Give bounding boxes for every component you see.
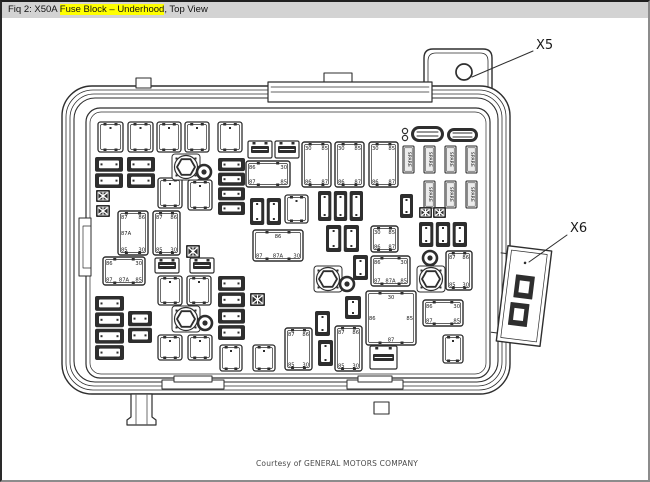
svg-text:SPARE: SPARE xyxy=(406,152,412,167)
relay-29: 30858687 xyxy=(371,226,398,252)
fuse-cavity-9 xyxy=(187,276,211,305)
fuse-cavity-4 xyxy=(218,122,242,152)
housing-mounting-legs xyxy=(127,394,389,425)
svg-text:85: 85 xyxy=(321,146,328,152)
relay-25: 87868530 xyxy=(335,326,362,371)
slot-60 xyxy=(155,258,179,273)
relay-24: 87868530 xyxy=(285,328,312,370)
spare-33: SPARE xyxy=(466,146,477,173)
svg-text:SPARE: SPARE xyxy=(469,152,475,167)
svg-text:85: 85 xyxy=(121,248,128,254)
relay-18: 86308785 xyxy=(246,161,290,187)
svg-text:87: 87 xyxy=(388,245,395,251)
svg-text:85: 85 xyxy=(156,248,163,254)
svg-text:30: 30 xyxy=(293,254,300,260)
spare-34: SPARE xyxy=(424,181,435,208)
relay-17: 30858687 xyxy=(369,142,398,187)
mrow-49 xyxy=(345,296,361,319)
fuse-cavity-1 xyxy=(128,122,153,152)
hex-64 xyxy=(172,306,200,332)
relay-20: 87868530 xyxy=(153,211,180,255)
relay-16: 30858687 xyxy=(335,142,364,187)
left-bracket xyxy=(79,218,91,276)
svg-text:86: 86 xyxy=(138,215,145,221)
target-67 xyxy=(197,165,211,179)
relay-22: 868787A30 xyxy=(253,230,303,261)
fuse-cavity-10 xyxy=(158,335,182,360)
relay-26: 30868587 xyxy=(366,291,416,345)
relay-23: 86308787A85 xyxy=(371,256,410,286)
svg-text:86: 86 xyxy=(170,215,177,221)
svg-text:30: 30 xyxy=(135,261,142,267)
svg-text:86: 86 xyxy=(305,180,312,186)
svg-text:87: 87 xyxy=(256,254,263,260)
svg-text:30: 30 xyxy=(302,363,309,369)
svg-text:86: 86 xyxy=(106,261,113,267)
fuse-cavity-8 xyxy=(158,276,182,305)
fuse-cavity-13 xyxy=(253,345,275,371)
spare-31: SPARE xyxy=(424,146,435,173)
xfuse-57 xyxy=(250,293,265,306)
callout-x5-label: X5 xyxy=(536,38,553,53)
relay-21: 86308787A85 xyxy=(103,257,145,285)
slot-61 xyxy=(190,258,214,273)
svg-text:86: 86 xyxy=(249,165,256,171)
target-69 xyxy=(340,277,354,291)
svg-text:87A: 87A xyxy=(121,231,132,237)
svg-text:30: 30 xyxy=(338,146,345,152)
svg-text:30: 30 xyxy=(372,146,379,152)
svg-text:87: 87 xyxy=(249,180,256,186)
svg-text:30: 30 xyxy=(400,260,407,266)
svg-text:85: 85 xyxy=(406,316,413,322)
svg-text:85: 85 xyxy=(400,279,407,285)
svg-text:86: 86 xyxy=(374,245,381,251)
svg-text:87: 87 xyxy=(388,338,395,344)
svg-text:86: 86 xyxy=(426,304,433,310)
svg-text:86: 86 xyxy=(374,260,381,266)
housing-top-tab xyxy=(136,78,151,88)
svg-text:85: 85 xyxy=(135,278,142,284)
mrow-48 xyxy=(318,340,333,366)
svg-text:85: 85 xyxy=(280,180,287,186)
fuse-cavity-7 xyxy=(285,195,308,223)
svg-text:86: 86 xyxy=(338,180,345,186)
svg-text:86: 86 xyxy=(369,316,376,322)
mrow-50 xyxy=(353,255,368,280)
fuse-cavity-0 xyxy=(98,122,123,152)
svg-text:87: 87 xyxy=(321,180,328,186)
svg-text:30: 30 xyxy=(453,304,460,310)
fuse-cavity-2 xyxy=(157,122,181,152)
svg-text:30: 30 xyxy=(280,165,287,171)
hex-66 xyxy=(417,266,445,292)
svg-text:85: 85 xyxy=(338,364,345,370)
svg-text:85: 85 xyxy=(453,319,460,325)
puller-72 xyxy=(447,128,478,142)
svg-text:SPARE: SPARE xyxy=(427,152,433,167)
svg-text:30: 30 xyxy=(462,283,469,289)
svg-text:30: 30 xyxy=(305,146,312,152)
svg-text:86: 86 xyxy=(462,255,469,261)
svg-text:86: 86 xyxy=(302,332,309,338)
svg-text:87: 87 xyxy=(121,215,128,221)
relay-27: 86308785 xyxy=(423,300,463,326)
svg-text:85: 85 xyxy=(388,230,395,236)
svg-text:87: 87 xyxy=(374,279,381,285)
xfuse-52 xyxy=(96,190,110,202)
fuse-cavity-3 xyxy=(185,122,209,152)
fuse-cavity-6 xyxy=(188,180,212,210)
fuse-cavity-12 xyxy=(220,345,242,371)
mrow-47 xyxy=(315,311,330,336)
relay-15: 30858687 xyxy=(302,142,331,187)
svg-text:85: 85 xyxy=(354,146,361,152)
x5-terminal-hole xyxy=(456,64,472,80)
svg-text:87: 87 xyxy=(449,255,456,261)
xfuse-54 xyxy=(186,245,200,258)
svg-text:85: 85 xyxy=(288,363,295,369)
svg-text:30: 30 xyxy=(388,295,395,301)
slot-59 xyxy=(275,141,299,158)
fuse-block-diagram: 30858687308586873085868786308785878687A8… xyxy=(0,0,650,482)
svg-text:87: 87 xyxy=(388,180,395,186)
svg-text:85: 85 xyxy=(388,146,395,152)
relay-28: 87868530 xyxy=(446,251,472,290)
hex-63 xyxy=(172,154,200,180)
svg-text:87: 87 xyxy=(156,215,163,221)
svg-text:86: 86 xyxy=(352,330,359,336)
svg-text:86: 86 xyxy=(275,234,282,240)
svg-text:87A: 87A xyxy=(385,279,396,285)
hex-65 xyxy=(314,266,342,292)
mrow-44 xyxy=(318,191,363,221)
svg-text:30: 30 xyxy=(170,248,177,254)
callout-x6-label: X6 xyxy=(570,221,587,236)
xfuse-53 xyxy=(96,205,110,217)
svg-text:86: 86 xyxy=(372,180,379,186)
svg-text:87A: 87A xyxy=(119,278,130,284)
svg-text:87: 87 xyxy=(426,319,433,325)
courtesy-credit: Courtesy of GENERAL MOTORS COMPANY xyxy=(256,459,418,468)
svg-text:87A: 87A xyxy=(273,254,284,260)
xfuse-56 xyxy=(433,207,446,218)
spare-36: SPARE xyxy=(466,181,477,208)
spare-30: SPARE xyxy=(403,146,414,173)
svg-text:87: 87 xyxy=(338,330,345,336)
spare-35: SPARE xyxy=(445,181,456,208)
fuse-cavity-5 xyxy=(158,178,182,208)
mrow-46 xyxy=(419,222,467,247)
svg-text:30: 30 xyxy=(352,364,359,370)
svg-text:30: 30 xyxy=(374,230,381,236)
xfuse-55 xyxy=(419,207,432,218)
svg-text:SPARE: SPARE xyxy=(448,152,454,167)
target-68 xyxy=(198,316,212,330)
fuse-cavity-11 xyxy=(188,335,212,360)
svg-text:SPARE: SPARE xyxy=(448,187,454,202)
slot-58 xyxy=(248,141,272,158)
target-70 xyxy=(423,251,437,265)
svg-text:SPARE: SPARE xyxy=(469,187,475,202)
svg-text:30: 30 xyxy=(138,248,145,254)
svg-text:87: 87 xyxy=(288,332,295,338)
relay-19: 878687A8530 xyxy=(118,211,148,255)
mrow-51 xyxy=(400,194,413,218)
svg-text:SPARE: SPARE xyxy=(427,187,433,202)
spare-32: SPARE xyxy=(445,146,456,173)
fuse-cavity-14 xyxy=(443,335,463,363)
slot-62 xyxy=(370,346,397,369)
svg-text:87: 87 xyxy=(354,180,361,186)
svg-text:85: 85 xyxy=(449,283,456,289)
svg-text:87: 87 xyxy=(106,278,113,284)
